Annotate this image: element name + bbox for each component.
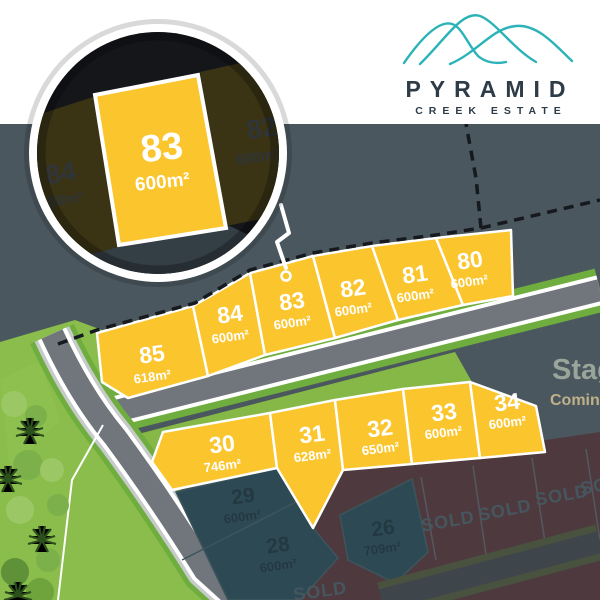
lot-number: 34 — [493, 388, 522, 417]
lot-number: 28 — [265, 533, 292, 559]
lot-number: 33 — [430, 398, 459, 427]
lot-number: 26 — [370, 516, 396, 542]
lot-number: 30 — [208, 430, 237, 459]
brand-name: PYRAMID — [405, 76, 574, 102]
stage-teaser-subtitle: Coming — [550, 392, 600, 409]
lot-number: 31 — [298, 420, 327, 449]
lot-number: 32 — [366, 414, 395, 443]
lot-number: 80 — [455, 245, 484, 274]
lot-number: 83 — [277, 286, 306, 315]
stage-teaser-title: Stage — [552, 354, 600, 386]
lot-number: 82 — [338, 273, 367, 302]
lot-number: 29 — [230, 484, 256, 510]
lot-number: 84 — [215, 299, 244, 328]
lot-number: 85 — [137, 339, 166, 368]
estate-masterplan: 85 618m² 84 600m² 83 600m² 82 600m² 81 6… — [0, 0, 600, 600]
focus-lot-number: 83 — [139, 125, 185, 171]
masterplan-map: 85 618m² 84 600m² 83 600m² 82 600m² 81 6… — [0, 0, 600, 600]
brand-tagline: CREEK ESTATE — [415, 105, 567, 117]
lot-number: 81 — [400, 259, 429, 288]
